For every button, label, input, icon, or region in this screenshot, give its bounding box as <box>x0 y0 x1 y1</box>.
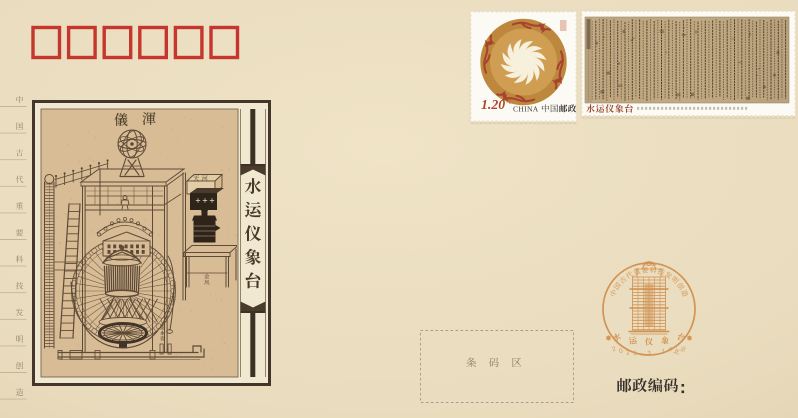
svg-text:.: . <box>641 351 643 358</box>
svg-text:CHINA: CHINA <box>513 105 539 114</box>
svg-text:1.20: 1.20 <box>481 97 505 112</box>
